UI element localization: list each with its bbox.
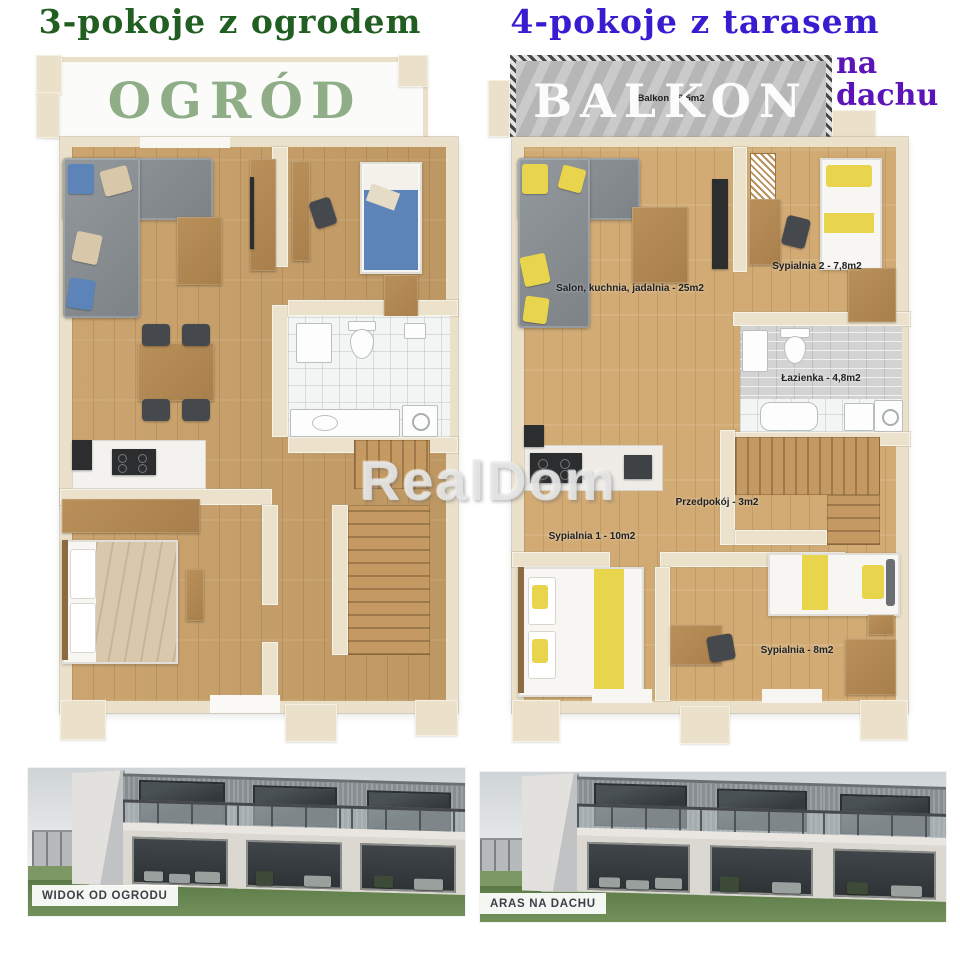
pillow-blue <box>68 164 94 194</box>
garden-area: OGRÓD <box>42 57 428 137</box>
burner-icon <box>138 454 147 463</box>
dining-chair <box>142 399 170 421</box>
hand-basin <box>404 323 426 339</box>
bathtub <box>760 402 818 431</box>
right-unit-title: 4-pokoje z tarasem <box>480 5 910 40</box>
balcony-concrete: Balkon - 8,5m2 BALKON <box>516 61 826 137</box>
interior-wall <box>262 642 278 701</box>
shower-tray <box>296 323 332 363</box>
dresser <box>186 569 204 621</box>
coffee-table <box>177 217 222 285</box>
interior-wall <box>512 552 610 567</box>
right-floorplan-panel: 4-pokoje z tarasem na dachu Balkon - 8,5… <box>480 0 960 760</box>
pillow-yellow <box>862 565 884 599</box>
lower-facade <box>237 834 357 892</box>
photo-garden-view: WIDOK OD OGRODU <box>28 768 465 916</box>
interior-wall <box>655 567 670 701</box>
lower-facade <box>123 831 243 889</box>
washing-machine <box>874 400 903 432</box>
glazed-opening <box>132 837 228 887</box>
lower-facade <box>577 835 706 895</box>
cooktop <box>112 449 156 475</box>
bedside-cabinet <box>384 275 418 321</box>
house-module <box>577 777 700 896</box>
dining-table <box>138 343 214 401</box>
interior-wall <box>288 300 458 316</box>
patio-chair <box>143 871 162 882</box>
dining-chair <box>182 324 210 346</box>
door-gap <box>592 689 652 703</box>
stairs-upper-flight <box>735 437 880 495</box>
patio-sofa <box>195 872 220 884</box>
wall-pier <box>680 706 730 744</box>
patio-chair <box>599 877 620 888</box>
potted-plant <box>847 882 868 895</box>
terrace-door-gap <box>140 137 230 148</box>
table <box>632 207 688 283</box>
balcony: Balkon - 8,5m2 BALKON <box>510 55 832 137</box>
stairs-lower-flight <box>827 495 880 545</box>
house-module <box>700 780 823 899</box>
patio-chair <box>168 874 189 884</box>
patio-sofa <box>414 879 443 890</box>
duvet-beige <box>96 542 176 662</box>
door-gap <box>762 689 822 703</box>
pillow-yellow <box>532 585 548 609</box>
pillow-yellow <box>522 164 548 194</box>
wall-pier <box>832 110 876 137</box>
garden-label: OGRÓD <box>47 62 423 137</box>
bathroom <box>288 316 450 437</box>
photo-badge-roof-terrace: ARAS NA DACHU <box>480 893 606 914</box>
left-floorplan-panel: 3-pokoje z ogrodem OGRÓD <box>0 0 480 760</box>
left-unit-title: 3-pokoje z ogrodem <box>30 5 430 40</box>
room-label-sypialnia3: Sypialnia - 8m2 <box>722 645 872 656</box>
single-bed <box>820 158 882 270</box>
dining-chair <box>142 324 170 346</box>
tv-screen <box>250 177 254 249</box>
patio-sofa <box>655 877 682 889</box>
wall-pier <box>36 55 62 95</box>
blanket-yellow <box>824 213 874 233</box>
burner-icon <box>118 464 127 473</box>
interior-wall <box>735 530 827 545</box>
kitchen-sink <box>624 455 652 479</box>
sink <box>844 403 874 431</box>
interior-wall <box>332 505 348 655</box>
pillow-yellow <box>522 295 549 324</box>
patio-sofa <box>891 885 922 897</box>
glazed-opening <box>833 848 936 900</box>
washing-machine <box>402 405 438 437</box>
lower-facade <box>823 842 946 902</box>
glazed-opening <box>360 843 456 893</box>
house-module <box>123 774 237 890</box>
blanket-yellow <box>802 555 828 610</box>
wardrobe <box>848 268 896 322</box>
wardrobe <box>62 499 200 533</box>
room-label-lazienka: Łazienka - 4,8m2 <box>740 373 902 384</box>
washer-door-icon <box>882 409 899 426</box>
burner-icon <box>118 454 127 463</box>
potted-plant <box>256 871 273 886</box>
wall-pier <box>512 700 560 742</box>
wall-pier <box>860 700 908 740</box>
photo-roof-terrace-view: ARAS NA DACHU <box>480 772 946 922</box>
room-label-sypialnia1: Sypialnia 1 - 10m2 <box>522 531 662 542</box>
bed-pillow <box>70 549 96 599</box>
wall-pier <box>398 55 428 87</box>
vanity-counter <box>290 409 400 437</box>
house-module <box>237 777 351 893</box>
wall-pier <box>285 704 337 742</box>
interior-wall <box>272 305 288 437</box>
wall-pier <box>36 92 60 138</box>
single-bed <box>768 553 900 616</box>
double-bed <box>62 540 178 664</box>
photo-badge-garden: WIDOK OD OGRODU <box>32 885 178 906</box>
interior-wall <box>720 430 735 545</box>
gable-end-wall <box>72 769 125 886</box>
sink <box>312 415 338 431</box>
bed-runner-yellow <box>594 569 624 691</box>
potted-plant <box>720 877 739 892</box>
glazed-opening <box>587 841 690 893</box>
house-module <box>351 780 465 896</box>
interior-wall <box>733 147 747 272</box>
nightstand <box>868 615 894 635</box>
wall-pier <box>415 700 458 736</box>
desk <box>749 199 781 265</box>
headboard <box>62 540 68 660</box>
pillow-blue <box>66 277 96 310</box>
lower-facade <box>700 839 829 899</box>
room-label-przedpokoj: Przedpokój - 3m2 <box>642 497 792 508</box>
gable-end-wall <box>522 772 579 892</box>
washer-door-icon <box>412 413 430 431</box>
single-bed-blue <box>360 162 422 274</box>
pillow-yellow <box>532 639 548 663</box>
right-floorplan: Salon, kuchnia, jadalnia - 25m2 Sypialni… <box>512 137 908 713</box>
toilet-bowl <box>350 329 374 359</box>
room-label-salon: Salon, kuchnia, jadalnia - 25m2 <box>530 283 730 294</box>
dining-chair <box>182 399 210 421</box>
terraced-house <box>522 775 946 902</box>
fridge <box>524 425 544 447</box>
interior-wall <box>262 505 278 605</box>
glazed-opening <box>246 840 342 890</box>
glazed-opening <box>710 845 813 897</box>
wall-pier <box>488 80 510 137</box>
stairs-main-flight <box>348 505 430 655</box>
fridge <box>72 440 92 470</box>
vanity <box>742 330 768 372</box>
left-floorplan <box>60 137 458 713</box>
patio-sofa <box>772 882 801 894</box>
bathroom: Łazienka - 4,8m2 <box>740 326 902 432</box>
patio-chair <box>626 879 649 889</box>
desk <box>292 161 310 261</box>
patio-sofa <box>303 876 330 887</box>
watermark: RealDom <box>360 448 617 513</box>
room-label-sypialnia2: Sypialnia 2 - 7,8m2 <box>742 261 892 272</box>
tv-cabinet <box>712 179 728 269</box>
burner-icon <box>138 464 147 473</box>
headboard <box>518 567 524 693</box>
bed-pillow <box>70 603 96 653</box>
pillow-yellow <box>826 165 872 187</box>
lower-facade <box>351 838 465 896</box>
wall-pier <box>60 700 106 740</box>
right-unit-title-suffix: na dachu <box>836 48 948 111</box>
potted-plant <box>373 876 392 889</box>
double-bed <box>518 567 644 697</box>
balcony-label: BALKON <box>516 61 826 137</box>
door-gap <box>210 695 280 713</box>
listing-collage: 3-pokoje z ogrodem OGRÓD <box>0 0 960 960</box>
toilet-bowl <box>784 336 806 364</box>
house-module <box>823 783 946 902</box>
pillow-gray <box>886 559 895 606</box>
terraced-house <box>72 772 465 895</box>
